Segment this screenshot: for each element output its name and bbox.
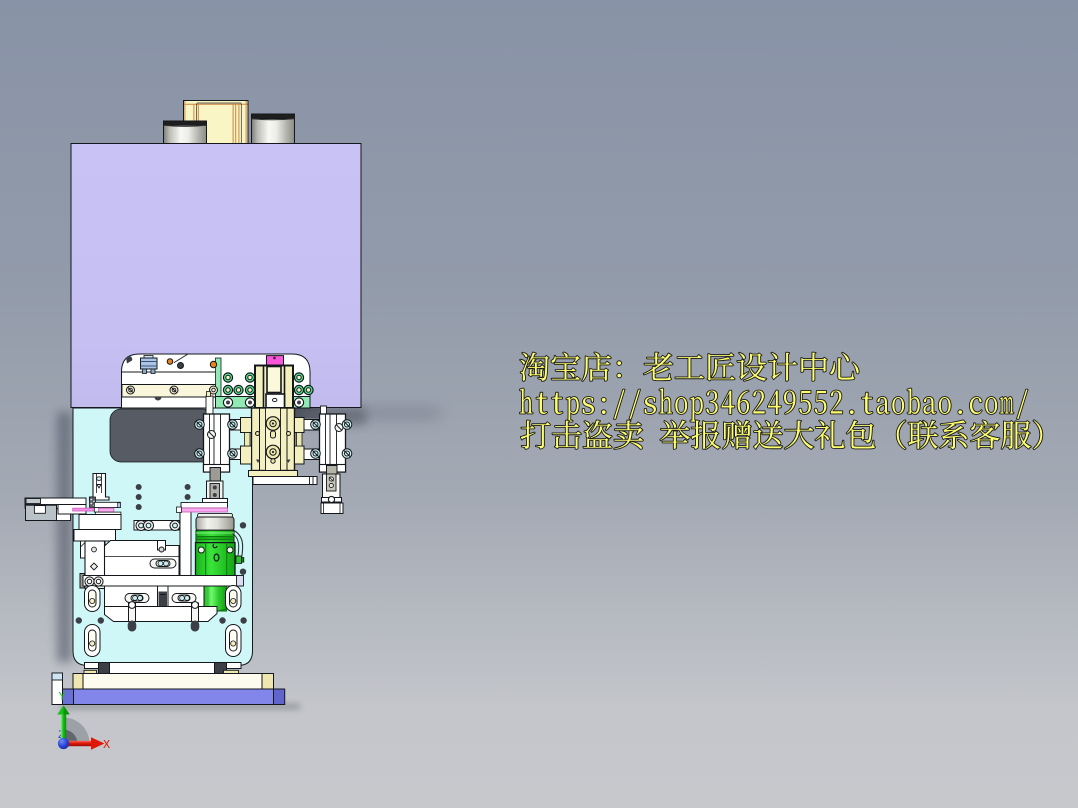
svg-text:Y: Y (59, 690, 66, 704)
svg-text:X: X (103, 738, 110, 752)
